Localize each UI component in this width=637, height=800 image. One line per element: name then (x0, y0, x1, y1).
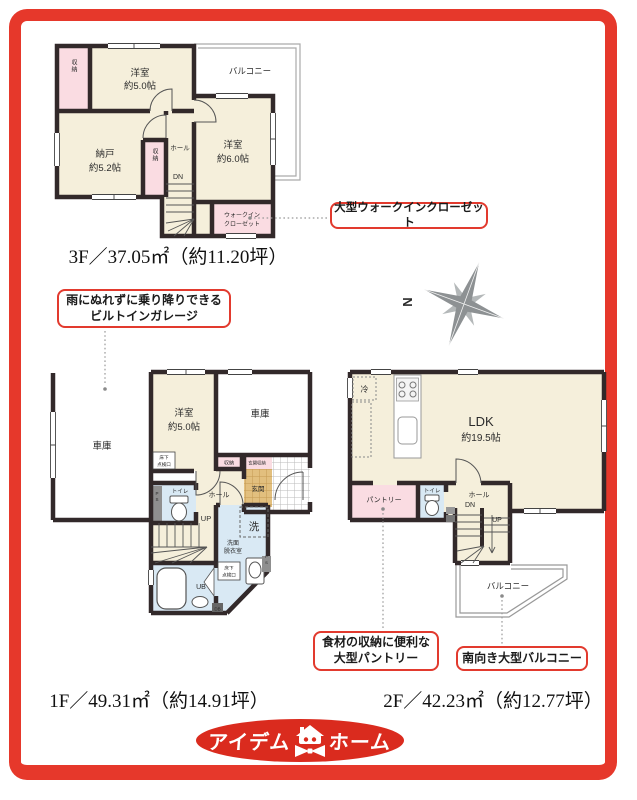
floorplan-page: バルコニー (0, 0, 637, 800)
dn-label-2f: DN (465, 502, 475, 509)
compass-north-label: N (400, 297, 415, 306)
basin-icon (192, 597, 208, 608)
porch-1f (272, 455, 310, 512)
balcony-label-2f: バルコニー (487, 581, 529, 591)
room2-size-3f: 約5.2帖 (89, 162, 122, 174)
ps-label-washroom: PS (264, 554, 269, 566)
floor2-body (350, 372, 604, 563)
company-logo: アイデム ホーム (196, 719, 404, 762)
callout-balcony: 南向き大型バルコニー (456, 646, 588, 671)
hall-label-3f: ホール (170, 144, 190, 152)
garage-right-label: 車庫 (250, 408, 270, 420)
fridge-label: 冷 (361, 384, 369, 394)
hatch2-line2: 点検口 (222, 572, 236, 579)
hatch1-line1: 床下 (159, 454, 169, 461)
toilet-label-1f: トイレ (172, 489, 189, 495)
entrance-storage-label: 玄関収納 (248, 460, 266, 467)
toilet-icon-1f (170, 496, 188, 521)
ps-label-1f: PS (155, 491, 160, 503)
pantry-label: パントリー (366, 496, 401, 504)
up-label-2f: UP (492, 517, 502, 524)
closet-label-1f: 収納 (224, 460, 234, 467)
washer-label: 洗 (249, 521, 260, 533)
floor3-area-label: 3F／37.05㎡（約11.20坪） (58, 242, 298, 269)
logo-house-icon (293, 725, 327, 757)
up-label-1f: UP (201, 514, 211, 523)
hatch1-line2: 点検口 (157, 461, 171, 468)
closet-left-label-3f: 収納 (70, 59, 77, 73)
bedroom-size-1f: 約5.0帖 (168, 421, 201, 433)
logo-text-right: ホーム (328, 726, 392, 755)
hatch2-line1: 床下 (224, 565, 234, 572)
dn-label-3f: DN (173, 174, 183, 181)
toilet-icon-2f (425, 495, 439, 516)
callout-pantry-line1: 食材の収納に便利な (315, 635, 437, 651)
hall-label-2f: ホール (469, 491, 490, 499)
room3-size-3f: 約6.0帖 (217, 153, 250, 165)
room2-name-3f: 納戸 (95, 148, 114, 160)
floor1-plan: 車庫 車庫 洋室 約5.0帖 床下 点検口 収納 玄関収納 玄関 トイレ PS … (50, 369, 310, 613)
ldk-size: 約19.5帖 (461, 431, 500, 444)
callout-garage-line1: 雨にぬれずに乗り降りできる (59, 293, 229, 309)
kitchen-counter (394, 375, 421, 458)
washroom-line1: 洗面 (227, 539, 239, 547)
toilet-label-2f: トイレ (424, 489, 441, 495)
sink-icon (398, 417, 417, 444)
bedroom-name-1f: 洋室 (174, 407, 193, 419)
compass: N (400, 248, 519, 359)
floor3-plan: バルコニー (54, 43, 300, 239)
callout-garage: 雨にぬれずに乗り降りできる ビルトインガレージ (57, 289, 231, 328)
room3-name-3f: 洋室 (223, 139, 242, 151)
stove-icon (397, 378, 419, 401)
logo-text-left: アイデム (207, 726, 292, 755)
wic-label-line2-3f: クローゼット (224, 220, 260, 228)
entrance-label: 玄関 (252, 484, 265, 493)
floor1-area-label: 1F／49.31㎡（約14.91坪） (39, 686, 279, 713)
hall-label-1f: ホール (209, 491, 230, 499)
bath-label: UB (196, 584, 206, 591)
ldk-name: LDK (468, 414, 494, 429)
callout-pantry-line2: 大型パントリー (315, 651, 437, 667)
floor2-plan: 冷 LDK 約19.5帖 パントリー トイレ ホール DN UP バルコニー (347, 369, 607, 617)
washroom-line2: 脱衣室 (224, 547, 242, 555)
util-box1-2f (446, 507, 455, 514)
util-box2-2f (446, 515, 455, 522)
callout-walkin-closet: 大型ウォークインクローゼット (330, 202, 488, 229)
room1-size-3f: 約5.0帖 (124, 80, 157, 92)
floor2-area-label: 2F／42.23㎡（約12.77坪） (373, 686, 613, 713)
garage-left-label: 車庫 (92, 440, 112, 452)
callout-walkin-closet-text: 大型ウォークインクローゼット (332, 201, 486, 231)
callout-garage-line2: ビルトインガレージ (59, 309, 229, 325)
closet-left-3f (57, 46, 90, 111)
balcony-label-3f: バルコニー (229, 66, 271, 76)
walkin-closet-3f (212, 202, 273, 236)
callout-balcony-text: 南向き大型バルコニー (458, 651, 586, 667)
callout-pantry: 食材の収納に便利な 大型パントリー (313, 631, 439, 671)
stairs-area-1f (151, 523, 216, 563)
db-label: DB (214, 607, 220, 612)
vanity-icon (246, 558, 264, 584)
plans-svg: バルコニー (0, 0, 637, 800)
room1-name-3f: 洋室 (130, 67, 149, 79)
bathtub-icon (157, 568, 186, 609)
closet-mid-label-3f: 収納 (151, 148, 158, 162)
